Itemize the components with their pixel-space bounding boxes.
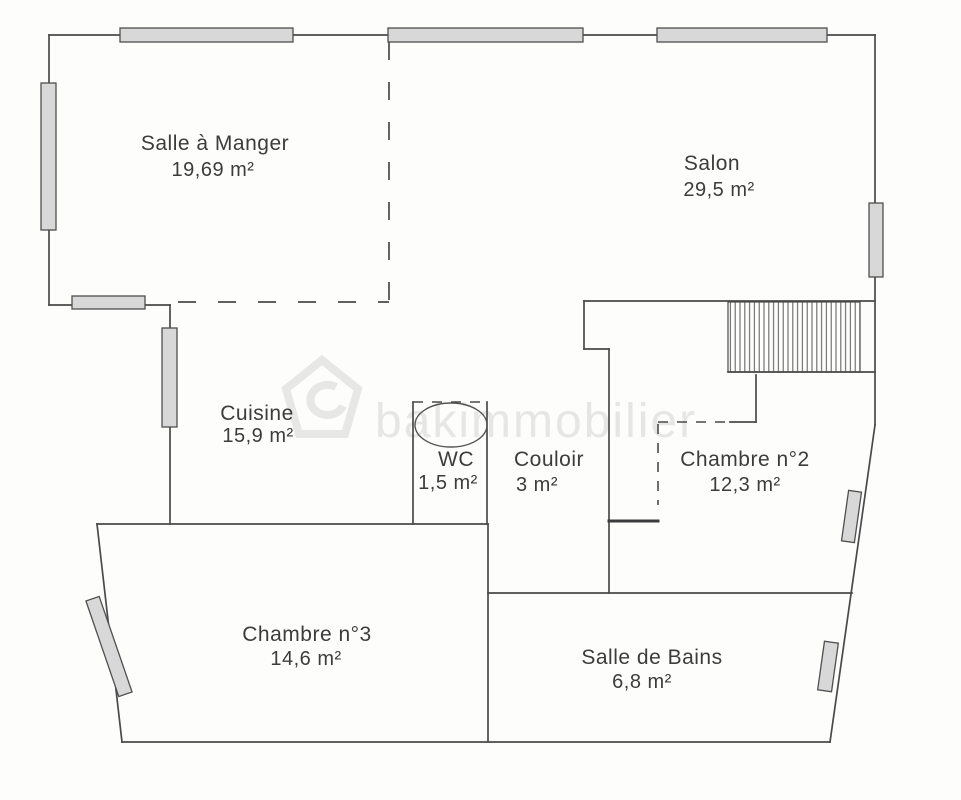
window-chambre2 [842, 490, 862, 542]
floor-plan-canvas: bakimmobilier [0, 0, 961, 800]
room-name: Salle à Manger [141, 132, 289, 155]
stairs [728, 302, 875, 372]
window-top-right [657, 28, 827, 42]
room-area: 1,5 m² [418, 472, 478, 494]
room-name: Salon [684, 152, 740, 175]
room-area: 15,9 m² [222, 425, 293, 447]
window-sdb [818, 641, 839, 691]
room-label-salle-de-bains: Salle de Bains 6,8 m² [581, 646, 722, 693]
window-top-middle [388, 28, 583, 42]
watermark: bakimmobilier [286, 360, 697, 448]
room-name: Couloir [514, 448, 584, 471]
room-label-chambre-2: Chambre n°2 12,3 m² [680, 448, 809, 496]
stairs-hatch [728, 302, 860, 372]
window-cuisine [162, 328, 177, 427]
watermark-text: bakimmobilier [375, 395, 697, 448]
room-area: 3 m² [516, 474, 558, 496]
window-left-notch [72, 296, 145, 309]
room-label-salle-a-manger: Salle à Manger 19,69 m² [141, 132, 289, 181]
room-label-wc: WC 1,5 m² [418, 448, 478, 494]
room-label-couloir: Couloir 3 m² [514, 448, 584, 496]
room-area: 12,3 m² [709, 474, 780, 496]
window-salon-right [869, 203, 883, 277]
house-logo-icon [286, 360, 358, 434]
room-area: 14,6 m² [270, 648, 341, 670]
room-area: 19,69 m² [172, 159, 255, 181]
room-label-chambre-3: Chambre n°3 14,6 m² [242, 623, 371, 670]
floor-plan-drawing: bakimmobilier [0, 0, 961, 800]
window-chambre3 [86, 596, 132, 696]
room-area: 29,5 m² [683, 179, 754, 201]
room-name: Cuisine [220, 402, 294, 425]
room-label-salon: Salon 29,5 m² [683, 152, 754, 201]
room-name: WC [438, 448, 474, 471]
room-name: Chambre n°2 [680, 448, 809, 471]
room-area: 6,8 m² [612, 671, 672, 693]
window-left [41, 83, 56, 230]
room-label-cuisine: Cuisine 15,9 m² [220, 402, 294, 447]
room-name: Chambre n°3 [242, 623, 371, 646]
room-name: Salle de Bains [581, 646, 722, 669]
window-top-left [120, 28, 293, 42]
wall-right-slant [830, 425, 875, 742]
